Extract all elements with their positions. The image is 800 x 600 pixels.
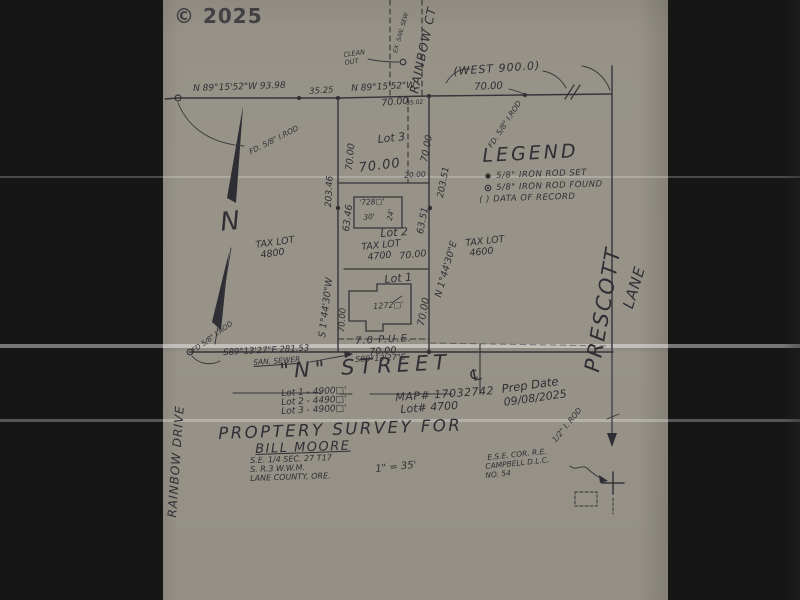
dim-20: 20.00: [404, 171, 426, 180]
building-728-width: 30': [363, 213, 375, 222]
dim-203-46: 203.46: [325, 176, 336, 208]
building-728-depth: 24': [386, 209, 395, 222]
legend-title: LEGEND: [482, 142, 579, 166]
lot2-label: Lot 2: [380, 226, 408, 239]
copyright-watermark: © 2025: [174, 6, 263, 26]
paper-edge-shadow: [782, 0, 800, 600]
building-728-label: '728□': [359, 198, 385, 207]
taxlot-4700-line2: 4700: [367, 250, 392, 262]
distance-70-b: 70.00: [474, 82, 503, 93]
centerline-symbol: ℄: [467, 366, 484, 385]
lot3-label: Lot 3: [377, 131, 406, 145]
distance-3525: 35.25: [309, 86, 334, 96]
dim-70-lot3-west: 70.00: [345, 143, 357, 171]
dim-70-lot1-west: 70.00: [338, 308, 348, 333]
taxlot-4600-line2: 4600: [469, 246, 494, 258]
lot1-label: Lot 1: [384, 272, 413, 285]
distance-70-a: 70.00: [381, 97, 409, 109]
survey-photo: © 2025 CLEAN OUT EX. SAN. SEW. RAINBOW C…: [0, 0, 800, 600]
north-arrow-label: N: [219, 208, 241, 236]
